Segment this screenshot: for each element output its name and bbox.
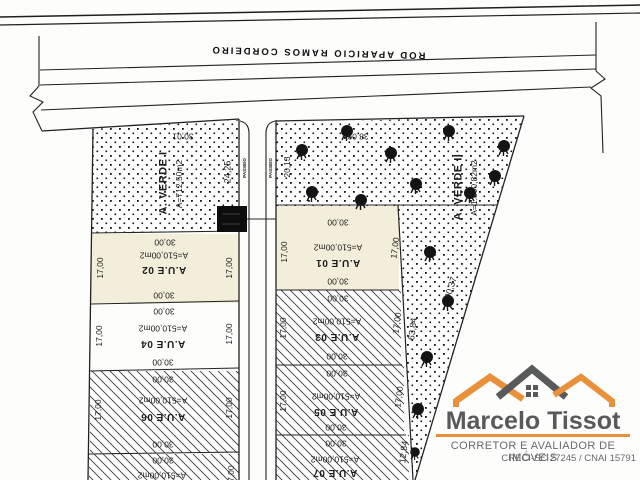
page-border-lines: [0, 5, 640, 25]
verde1-name: A. VERDE I: [159, 151, 170, 214]
sidewalk-right-label: PASSEIO: [269, 158, 274, 178]
lot-r0-area: A=510,00m2: [314, 243, 362, 252]
lot-l0-name: A.U.E 02: [142, 264, 187, 274]
lot-r1-top-dim: 30,00: [327, 294, 348, 303]
lot-r3-name: A.U.E 07: [313, 467, 358, 477]
lot-l1-area: A=510,00m2: [139, 324, 187, 333]
lot-r2-area: A=510,00m2: [312, 392, 360, 401]
verde1-right-dim: 24,25: [224, 161, 233, 184]
lot-l3-top-dim: 30,00: [152, 456, 173, 465]
verde2-area: A=1.800,82m2: [470, 160, 479, 216]
lot-l0-area: A=510,00m2: [140, 251, 188, 260]
verde2-left-dim: 20,13: [283, 156, 292, 177]
lot-r1-name: A.U.E 03: [315, 331, 360, 341]
lot-l2-left-dim: 17,00: [94, 399, 103, 420]
lot-r0-bottom-dim: 30,00: [327, 277, 348, 286]
lot-r1-area: A=510,00m2: [313, 317, 361, 326]
lot-l1-right-dim: 17,00: [225, 323, 234, 344]
verde2-name: A. VERDE II: [454, 154, 465, 221]
roof-icon: [426, 357, 640, 407]
lot-l1-bottom-dim: 30,00: [152, 358, 173, 367]
lot-l1-name: A.U.E 04: [141, 338, 186, 348]
lot-r3-top-dim: 30,00: [325, 439, 346, 448]
verde1-top-dim: 30,01: [172, 132, 193, 141]
lot-r0-left-dim: 17,00: [280, 241, 289, 262]
lot-l0-left-dim: 17,00: [96, 257, 105, 278]
verde1-area: A=712,50m2: [175, 160, 184, 208]
lot-r2-name: A.U.E 05: [314, 406, 359, 416]
verde2-top-dim: 38,09: [347, 132, 368, 141]
plat-drawing: ROD APARICIO RAMOS CORDEIRO 30,01 A. VER…: [0, 0, 640, 480]
logo-underline: [436, 434, 630, 437]
lot-r0-name: A.U.E 01: [316, 257, 361, 267]
lot-r1-bottom-dim: 30,00: [326, 352, 347, 361]
lot-l2-area: A=510,00m2: [139, 396, 187, 405]
logo-title: Marcelo Tissot: [426, 407, 640, 436]
lot-l1-left-dim: 17,00: [95, 325, 104, 346]
lot-l2-bottom-dim: 30,00: [152, 440, 173, 449]
lot-l0-top-dim: 30,00: [154, 238, 175, 247]
lot-r3-area: A=510,00m2: [311, 455, 359, 464]
sidewalk-left-label: PASSEIO: [243, 158, 248, 178]
lot-r2-bottom-dim: 30,00: [325, 423, 346, 432]
lot-l1-top-dim: 30,00: [153, 307, 174, 316]
black-square-marker: [217, 206, 247, 232]
realtor-logo: Marcelo Tissot CORRETOR E AVALIADOR DE I…: [426, 357, 640, 472]
lot-l0-bottom-dim: 30,00: [153, 291, 174, 300]
lot-l2-top-dim: 30,00: [152, 375, 173, 384]
lot-l0-right-dim: 17,00: [225, 257, 234, 278]
lot-r2-left-dim: 17,00: [279, 390, 288, 411]
lot-l2-right-dim: 17,00: [225, 397, 234, 418]
logo-registry: CRECI-SC 27245 / CNAI 15791: [446, 453, 636, 464]
lot-l3-area: A=510,00m2: [138, 471, 186, 480]
lot-r1-left-dim: 17,00: [279, 317, 288, 338]
lot-r2-top-dim: 30,00: [326, 369, 347, 378]
lot-l2-name: A.U.E 06: [141, 411, 186, 421]
lot-l3-right-dim: 17,00: [227, 465, 236, 480]
lot-r0-top-dim: 30,00: [327, 218, 348, 227]
